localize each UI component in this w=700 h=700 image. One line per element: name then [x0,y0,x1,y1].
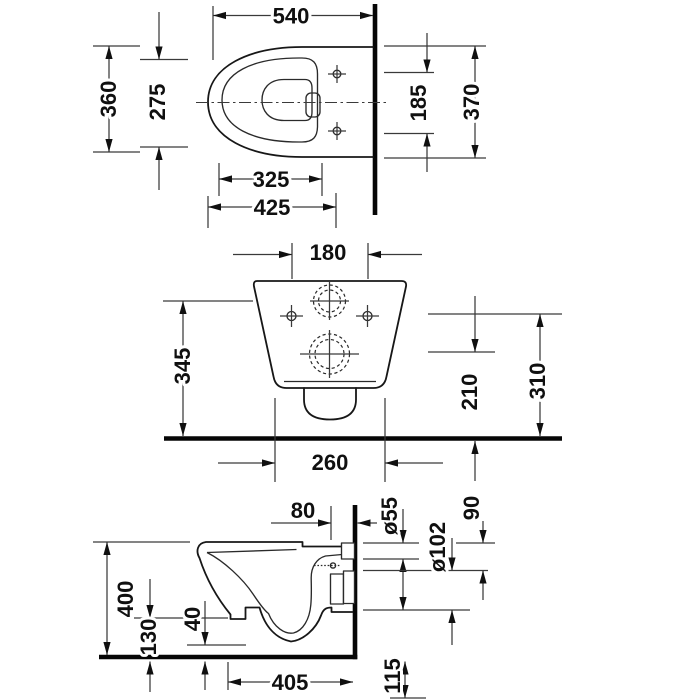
dim-label-185: 185 [406,85,431,122]
dim-310: 310 [428,314,562,436]
dim-325: 325 [219,163,322,196]
drawing-canvas: 540 360 275 325 425 [0,0,700,700]
front-view: 180 345 310 210 260 [163,240,562,482]
dim-o102: ø102 [363,522,488,645]
side-view: 80 ø55 ø102 90 400 [93,496,495,698]
dim-345: 345 [163,301,253,436]
dim-label-275: 275 [145,84,170,121]
dim-360: 360 [93,46,140,152]
dim-label-90: 90 [459,496,484,520]
fixing-point-icon [328,122,346,140]
dim-115: 115 [380,658,426,698]
dim-label-425: 425 [254,195,291,220]
dim-label-260: 260 [312,450,349,475]
seat-joint-line [207,550,297,553]
dim-275: 275 [140,12,188,190]
dim-label-345: 345 [170,348,195,385]
dim-405: 405 [228,662,353,695]
supply-hole [310,282,349,320]
outlet-elbow [331,574,344,604]
dim-label-130: 130 [136,619,161,656]
dim-425: 425 [208,193,336,228]
dim-180: 180 [233,240,422,279]
dim-370: 370 [384,46,486,158]
fixing-hole-icon [280,305,303,327]
dim-label-405: 405 [272,670,309,695]
outlet-pipe-outline [304,388,356,420]
dim-label-210: 210 [457,374,482,411]
dim-label-180: 180 [310,240,347,265]
dim-label-80: 80 [291,498,315,523]
dimension-drawing: 540 360 275 325 425 [0,0,700,700]
fixing-hole-icon [356,305,379,327]
outlet-hole [300,330,359,378]
dim-label-115: 115 [380,658,405,694]
dim-185: 185 [384,33,434,172]
dim-label-325: 325 [253,167,290,192]
dim-40: 40 [180,601,246,690]
dim-540: 540 [213,4,373,61]
dim-label-400: 400 [113,581,138,618]
dim-label-540: 540 [273,4,310,29]
dim-90: 90 [459,496,484,600]
toilet-profile-outline [198,542,353,642]
dim-label-370: 370 [459,84,484,121]
seat-ring-outline [222,58,318,142]
top-view: 540 360 275 325 425 [93,4,486,229]
dim-210: 210 [428,296,495,481]
dim-label-40: 40 [180,607,205,631]
dim-label-310: 310 [525,363,550,400]
fixing-point-icon [328,65,346,83]
supply-connector [342,543,355,559]
bowl-opening-outline [262,80,312,121]
dim-130: 130 [134,579,228,692]
bowl-section-inner-line [207,553,342,634]
dim-label-360: 360 [96,81,121,118]
outlet-connector [344,571,355,604]
dim-80: 80 [271,498,377,540]
dim-label-o55: ø55 [377,497,402,535]
dim-label-o102: ø102 [425,522,450,572]
